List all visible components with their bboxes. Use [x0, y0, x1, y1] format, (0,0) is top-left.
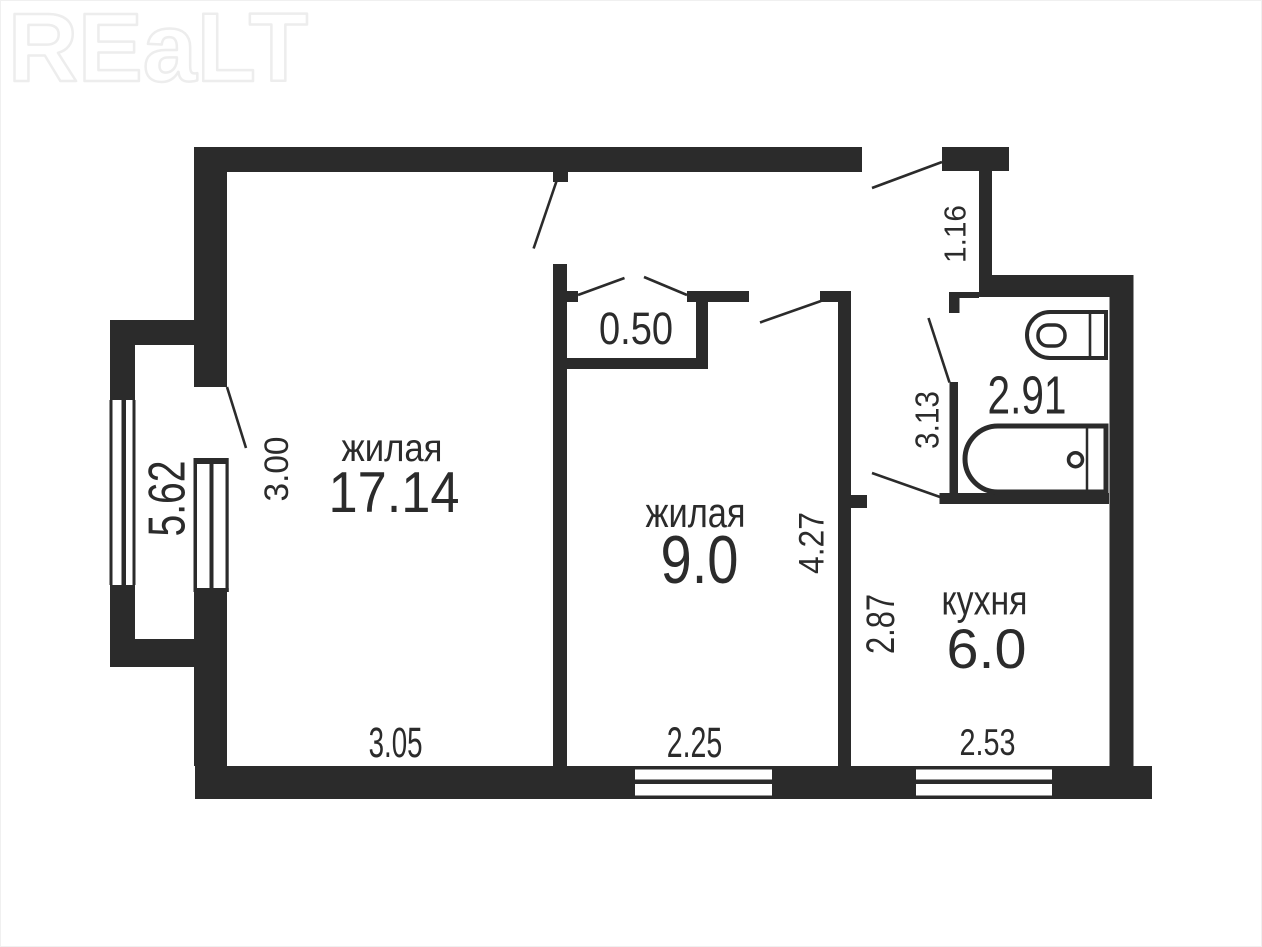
svg-text:3.05: 3.05: [369, 719, 423, 767]
svg-text:2.91: 2.91: [988, 366, 1067, 426]
svg-text:6.0: 6.0: [947, 617, 1027, 680]
svg-text:2.87: 2.87: [859, 594, 903, 654]
svg-text:5.62: 5.62: [138, 461, 196, 537]
svg-text:3.13: 3.13: [909, 391, 946, 449]
svg-text:1.16: 1.16: [938, 205, 972, 263]
svg-text:17.14: 17.14: [329, 461, 460, 525]
svg-text:4.27: 4.27: [792, 512, 832, 574]
svg-text:2.53: 2.53: [960, 721, 1016, 763]
svg-text:0.50: 0.50: [599, 303, 673, 354]
svg-text:2.25: 2.25: [667, 719, 723, 767]
svg-text:9.0: 9.0: [661, 522, 739, 598]
svg-text:REaLT: REaLT: [8, 0, 308, 102]
svg-text:3.00: 3.00: [258, 437, 296, 502]
